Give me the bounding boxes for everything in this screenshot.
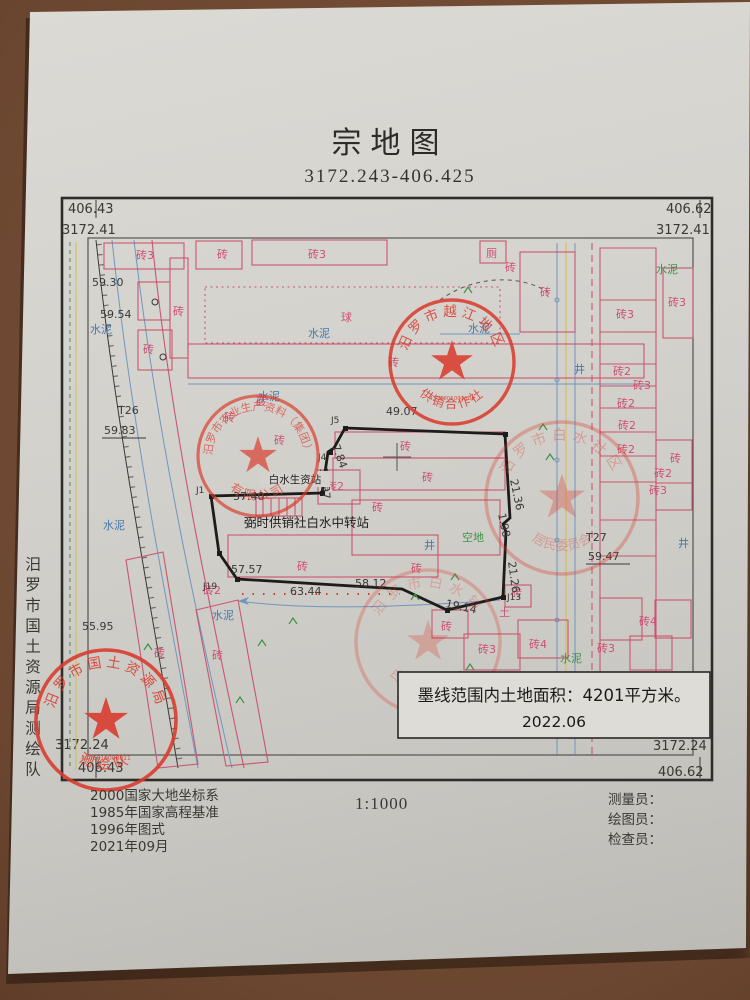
stamp-agri-company: 汨罗市农业生产资料（集团） 有限公司 [198, 396, 318, 516]
cement-label: 水泥 [103, 519, 125, 532]
checker-field: 检查员： [608, 830, 662, 850]
datum-line: 1985年国家高程基准 [90, 805, 219, 822]
brick-label: 砖 [173, 304, 184, 318]
cement-label: 水泥 [212, 609, 234, 622]
brick-label: 砖3 [649, 483, 667, 497]
boundary-point-id: J5 [330, 416, 339, 426]
stamp-arc-text: 汨罗市白水社区 [497, 427, 627, 478]
datum-notes: 2000国家大地坐标系 1985年国家高程基准 1996年图式 2021年09月 [90, 788, 219, 856]
datum-line: 2021年09月 [90, 839, 219, 856]
edge-length-label: 7.84 [329, 443, 350, 470]
stamp-arc-text: 居民委员会 [529, 531, 594, 554]
stamp-survey-team: 汨罗市国土资源局 测绘队 4306810008011 [36, 650, 176, 790]
brick-label: 砖 [670, 451, 681, 465]
brick-label: 砖 [422, 470, 433, 484]
boundary-point-id: J1 [195, 486, 204, 496]
drafter-field: 绘图员： [608, 810, 662, 830]
brick-label: 砖3 [668, 295, 686, 309]
brick-label: 砖3 [633, 378, 651, 392]
open-land-label: 空地 [462, 530, 484, 544]
brick-label: 砖 [372, 500, 383, 514]
svg-text:汨罗市白水镇: 汨罗市白水镇 [369, 573, 487, 618]
brick-label: 砖 [154, 646, 165, 660]
brick-label: 砖 [274, 433, 285, 447]
corner-coord: 3172.41 [656, 223, 710, 238]
datum-line: 1996年图式 [90, 822, 219, 839]
svg-text:居民委员会: 居民委员会 [529, 531, 594, 554]
brick-label: 砖 [217, 247, 228, 261]
datum-line: 2000国家大地坐标系 [90, 788, 219, 805]
staff-signature-fields: 测量员： 绘图员： 检查员： [608, 790, 662, 850]
ball-field-label: 球 [341, 310, 352, 324]
corner-coord: 406.62 [666, 202, 712, 217]
brick-label: 砖3 [597, 641, 615, 655]
brick-label: 砖3 [478, 642, 496, 656]
well-symbol: 井 [424, 538, 435, 552]
control-point-label: T26 [117, 404, 139, 417]
stamp-serial: 4306810008011 [81, 755, 131, 762]
cement-label: 水泥 [90, 323, 112, 336]
stamp-serial: 4306001003108 [429, 396, 475, 402]
elevation-label: 59.54 [100, 308, 132, 321]
brick-label: 砖2 [617, 396, 635, 410]
brick-label: 砖3 [308, 247, 326, 261]
brick-label: 砖3 [616, 307, 634, 321]
edge-length-label: 21.26 [505, 561, 522, 594]
map-scale: 1:1000 [355, 794, 408, 814]
corner-coord: 406.43 [68, 202, 114, 217]
stamp-arc-text: 汨罗市白水镇 [369, 573, 487, 618]
photo-of-parcel-map: 宗地图 3172.243-406.425 汨罗市国土资源局测绘队 406.43 … [0, 0, 750, 1000]
area-note-box: 墨线范围内土地面积：4201平方米。 2022.06 [398, 672, 710, 738]
brick-label: 砖2 [618, 418, 636, 432]
toilet-label: 厕 [486, 247, 497, 260]
brick-label: 砖 [540, 285, 551, 299]
boundary-point-id: J13 [506, 593, 521, 603]
corner-coord: 3172.24 [653, 739, 707, 754]
elevation-label: 55.95 [82, 620, 114, 633]
cement-label: 水泥 [560, 652, 582, 665]
brick-label: 砖4 [639, 614, 657, 628]
edge-length-label: 63.44 [290, 585, 322, 598]
cement-label: 水泥 [308, 327, 330, 340]
brick-label: 砖 [143, 342, 154, 356]
brick-label: 砖2 [613, 364, 631, 378]
elevation-label: 59.83 [104, 424, 136, 437]
stamp-supply-coop: 汨罗市越江地区 供销合作社 4306001003108 [390, 300, 514, 424]
boundary-point-id: J19 [202, 582, 217, 592]
brick-label: 砖4 [529, 637, 547, 651]
map-labels: 砖3 砖 砖3 厕 砖 砖 砖 球 砖 砖 砖3 砖3 砖2 砖3 砖2 砖2 … [82, 247, 689, 686]
brick-label: 砖 [400, 439, 411, 453]
soil-symbol: 土 [499, 606, 510, 619]
corner-coord: 406.62 [658, 765, 704, 780]
brick-label: 砖3 [136, 248, 154, 262]
well-symbol: 井 [574, 362, 585, 376]
area-text: 墨线范围内土地面积：4201平方米。 [418, 686, 691, 705]
brick-label: 砖 [297, 559, 308, 573]
corner-coord: 3172.41 [62, 223, 116, 238]
brick-label: 砖 [212, 648, 223, 662]
svg-text:汨罗市白水社区: 汨罗市白水社区 [497, 427, 627, 478]
brick-label: 砖2 [654, 466, 672, 480]
well-symbol: 井 [678, 536, 689, 550]
cement-label: 水泥 [656, 263, 678, 276]
surveyor-field: 测量员： [608, 790, 662, 810]
area-date: 2022.06 [522, 713, 586, 731]
corner-coord: 3172.24 [55, 738, 109, 753]
brick-label: 砖 [441, 619, 452, 633]
edge-length-label: 57.57 [231, 563, 263, 576]
brick-label: 砖 [505, 260, 516, 274]
elevation-label: 59.30 [92, 276, 124, 289]
